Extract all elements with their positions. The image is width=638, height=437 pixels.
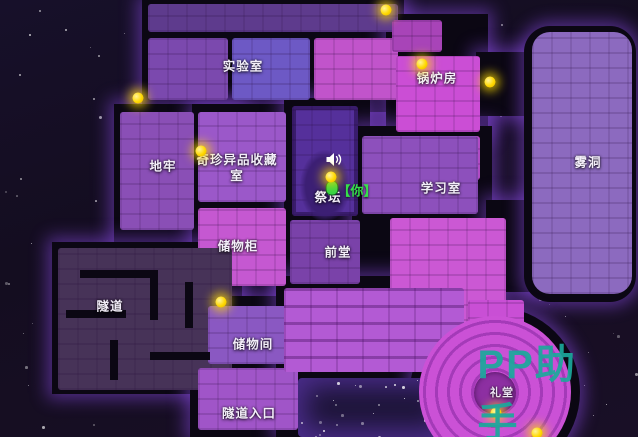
room-label-study: 学习室 bbox=[421, 178, 462, 197]
room-top-gallery bbox=[148, 4, 398, 32]
room-label-lockers: 储物柜 bbox=[218, 236, 259, 255]
light-orb bbox=[196, 146, 207, 157]
room-label-mist-cave: 雾洞 bbox=[574, 152, 601, 171]
maze-wall bbox=[150, 270, 158, 320]
room-lab-east bbox=[314, 38, 398, 100]
player-you-label: 【你】 bbox=[337, 181, 376, 200]
maze-wall bbox=[80, 270, 150, 278]
room-label-storage: 储物间 bbox=[233, 334, 274, 353]
maze-wall bbox=[110, 340, 118, 380]
light-orb bbox=[485, 77, 496, 88]
maze-wall bbox=[185, 282, 193, 328]
watermark-pp-assistant: PP助手 bbox=[478, 332, 585, 437]
light-orb bbox=[417, 59, 428, 70]
room-label-dungeon: 地牢 bbox=[149, 156, 176, 175]
room-label-tunnel: 隧道 bbox=[96, 296, 123, 315]
game-map-screenshot: 实验室 锅炉房 地牢 奇珍异品收藏室 雾洞 祭坛 学习室 储物柜 前堂 隧道 储… bbox=[0, 0, 638, 437]
maze-wall bbox=[150, 352, 210, 360]
light-orb bbox=[133, 93, 144, 104]
speaker-icon bbox=[326, 152, 343, 172]
room-boiler-annex bbox=[392, 20, 442, 52]
room-label-lab: 实验室 bbox=[223, 56, 264, 75]
room-lab-west bbox=[148, 38, 228, 100]
light-orb bbox=[326, 172, 337, 183]
light-orb bbox=[381, 5, 392, 16]
room-study bbox=[362, 136, 478, 214]
room-label-boiler: 锅炉房 bbox=[417, 68, 458, 87]
room-label-front-hall: 前堂 bbox=[324, 242, 351, 261]
room-label-tunnel-entrance: 隧道入口 bbox=[222, 403, 276, 422]
light-orb bbox=[216, 297, 227, 308]
room-label-collection: 奇珍异品收藏室 bbox=[191, 152, 283, 185]
